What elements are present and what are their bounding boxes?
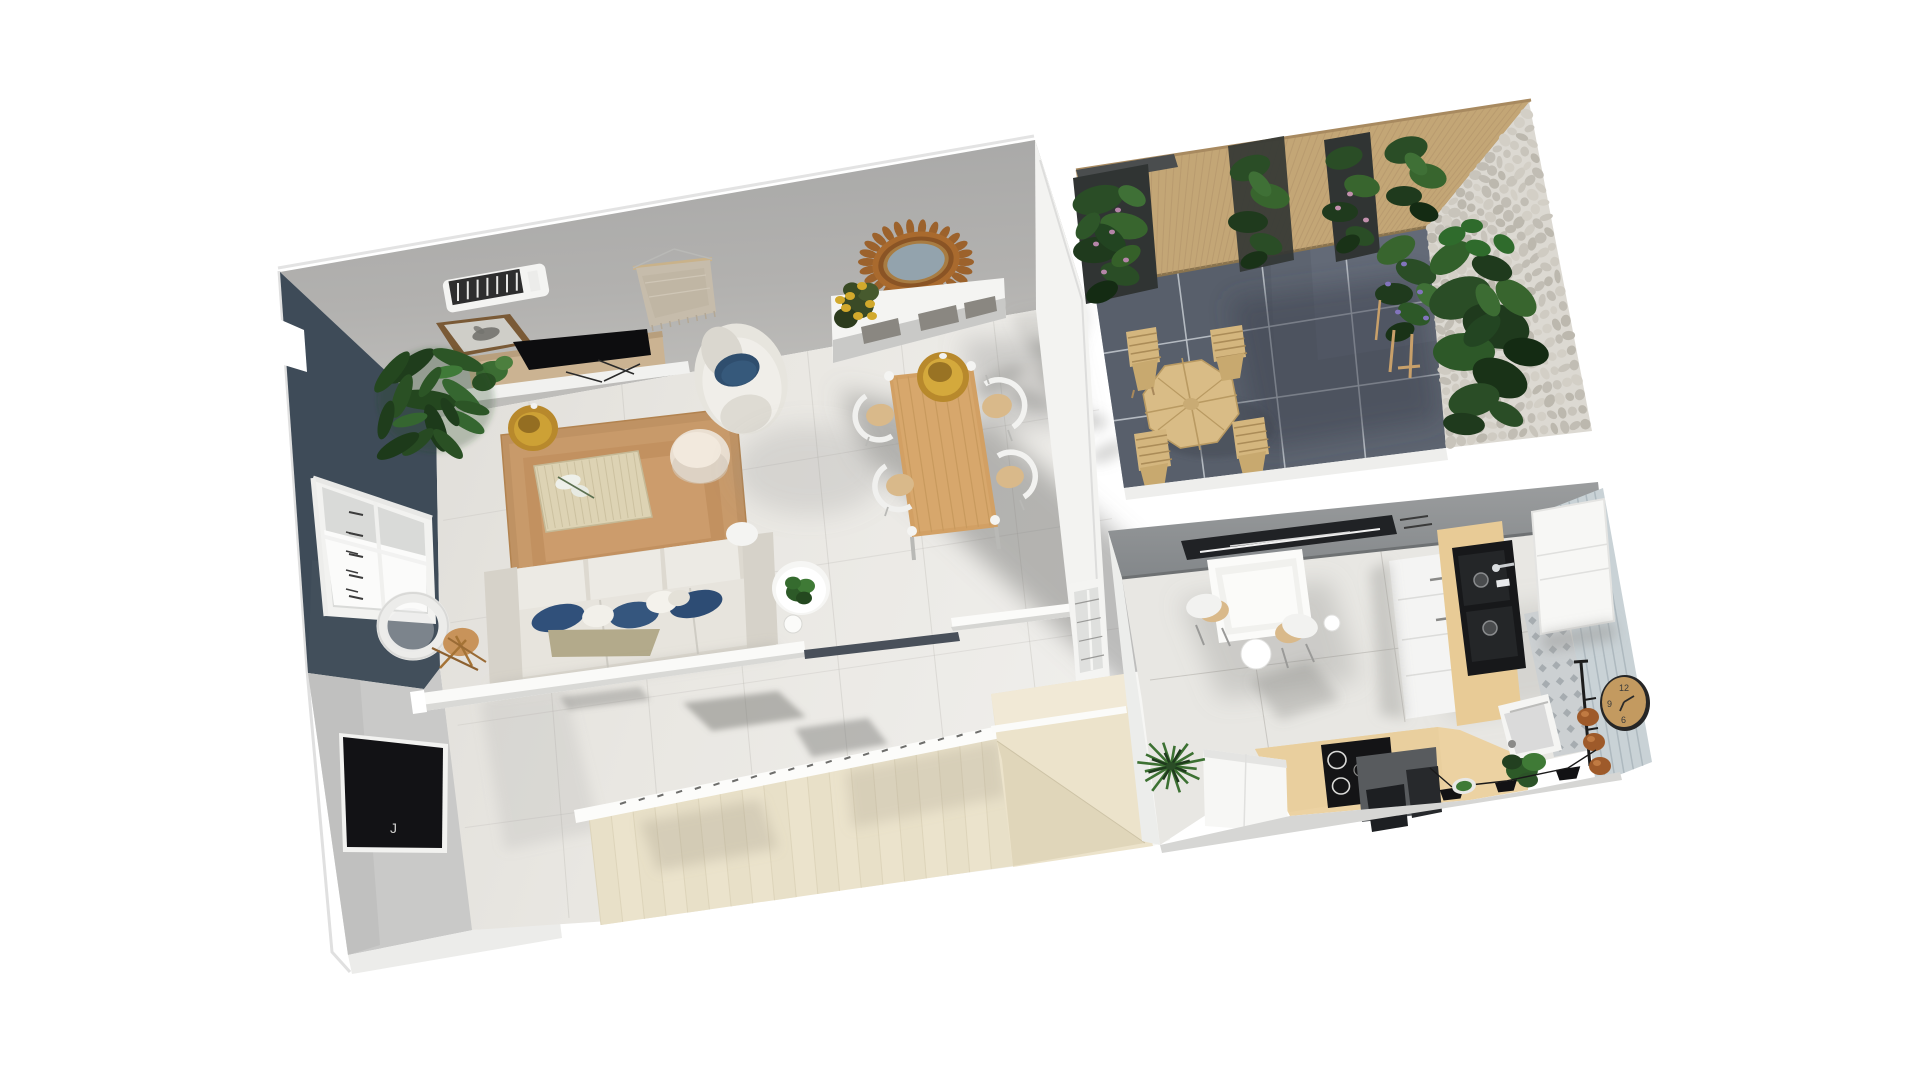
svg-text:9: 9 xyxy=(1607,699,1612,709)
svg-text:J: J xyxy=(390,820,397,836)
svg-text:6: 6 xyxy=(1621,715,1626,725)
svg-text:12: 12 xyxy=(1619,683,1629,693)
